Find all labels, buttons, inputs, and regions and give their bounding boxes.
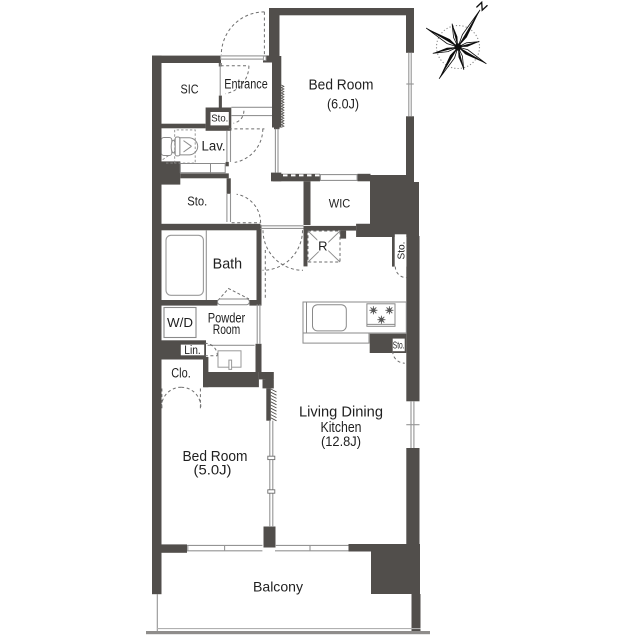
- svg-text:Bath: Bath: [213, 256, 243, 273]
- svg-text:Sto.: Sto.: [211, 113, 228, 125]
- svg-text:Room: Room: [213, 322, 241, 337]
- svg-text:R: R: [318, 239, 327, 254]
- svg-text:Sto.: Sto.: [393, 341, 405, 352]
- svg-text:WIC: WIC: [329, 197, 351, 211]
- svg-text:(5.0J): (5.0J): [194, 463, 232, 478]
- svg-text:(6.0J): (6.0J): [327, 97, 359, 112]
- svg-text:Balcony: Balcony: [253, 579, 303, 595]
- svg-text:SIC: SIC: [181, 83, 199, 97]
- svg-text:Clo.: Clo.: [171, 366, 191, 381]
- svg-text:(12.8J): (12.8J): [321, 434, 361, 449]
- svg-text:Bed Room: Bed Room: [309, 78, 374, 94]
- svg-text:W/D: W/D: [167, 315, 193, 330]
- svg-text:Living Dining: Living Dining: [299, 404, 383, 420]
- svg-text:Lin.: Lin.: [184, 345, 201, 357]
- svg-text:Entrance: Entrance: [224, 77, 268, 92]
- svg-text:Lav.: Lav.: [202, 139, 226, 154]
- svg-text:Sto.: Sto.: [187, 194, 207, 209]
- svg-text:Sto.: Sto.: [395, 242, 407, 260]
